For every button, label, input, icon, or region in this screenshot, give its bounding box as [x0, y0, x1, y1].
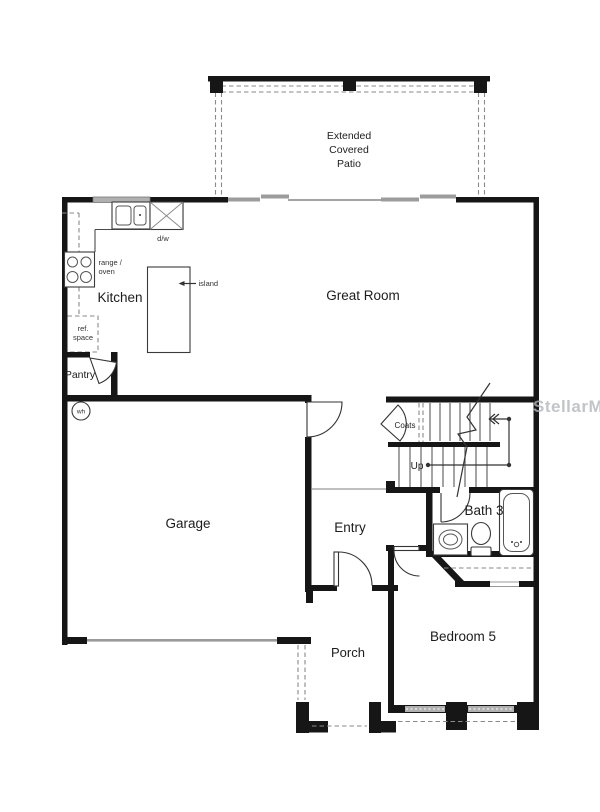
ref-label-2: space: [73, 333, 93, 342]
sliding-glass-door: [228, 195, 456, 202]
floor-plan: Extended Covered Patio Great Room: [0, 0, 600, 812]
up-label: Up: [411, 461, 424, 472]
room-label-garage: Garage: [165, 516, 210, 531]
range-label-2: oven: [99, 267, 115, 276]
room-label-bedroom5: Bedroom 5: [430, 629, 496, 644]
room-label-kitchen: Kitchen: [97, 290, 142, 305]
dishwasher: d/w: [150, 202, 183, 243]
coats-closet: Coats: [381, 403, 423, 442]
floor-plan-svg: Extended Covered Patio Great Room: [0, 0, 600, 812]
room-label-great-room: Great Room: [326, 288, 400, 303]
porch-corner-post: [369, 721, 396, 733]
room-label-entry: Entry: [334, 520, 366, 535]
angled-wall: [432, 557, 464, 581]
watermark-text: StellarMLS: [533, 397, 600, 416]
dishwasher-label: d/w: [157, 234, 169, 243]
bedroom-5: Bedroom 5: [386, 545, 539, 730]
porch-corner-post: [296, 721, 328, 733]
bedroom-closet: [432, 557, 534, 587]
kitchen-sink: [112, 202, 150, 229]
entry: Entry: [306, 487, 433, 603]
bedroom-door: [394, 547, 420, 577]
water-heater: wh: [72, 402, 90, 420]
porch-post: [446, 702, 467, 730]
room-label-pantry: Pantry: [65, 369, 96, 381]
bath-3: Bath 3: [426, 490, 534, 558]
range-oven: range / oven: [65, 252, 123, 287]
kitchen-island: island: [148, 267, 219, 353]
bathtub: [500, 490, 534, 556]
room-label-patio-1: Extended: [327, 130, 372, 142]
toilet: [471, 523, 491, 557]
stairs: Coats: [381, 383, 534, 497]
room-label-porch: Porch: [331, 645, 365, 660]
garage-entry-door: [307, 402, 342, 437]
patio-post: [210, 81, 223, 93]
pantry: Pantry: [62, 352, 118, 397]
range-label-1: range /: [99, 258, 123, 267]
room-label-patio-3: Patio: [337, 158, 361, 170]
kitchen: d/w range / oven ref. space island Kitch…: [62, 202, 218, 353]
front-door: [334, 552, 372, 586]
island-label: island: [199, 279, 219, 288]
porch-post: [517, 702, 539, 730]
extended-covered-patio: Extended Covered Patio: [208, 76, 490, 197]
ref-label-1: ref.: [78, 324, 89, 333]
room-label-patio-2: Covered: [329, 144, 369, 156]
vanity-sink: [434, 524, 468, 555]
patio-post: [474, 81, 487, 93]
room-label-bath3: Bath 3: [464, 503, 503, 518]
water-heater-label: wh: [76, 409, 86, 416]
garage-overhead-door: [87, 639, 277, 642]
porch: Porch: [296, 645, 396, 733]
great-room: Great Room: [312, 288, 424, 489]
garage: wh Garage: [62, 395, 342, 700]
room-label-coats: Coats: [395, 421, 416, 430]
ref-space: ref. space: [68, 316, 99, 352]
patio-post: [343, 79, 356, 91]
